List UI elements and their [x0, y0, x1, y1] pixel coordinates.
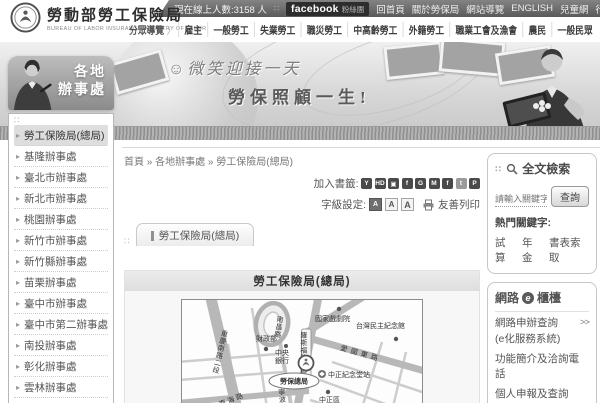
arrow-icon: ▸ [16, 131, 20, 140]
nav-item-farmer[interactable]: 農民 [522, 22, 551, 37]
facebook-bookmark-icon[interactable]: f [402, 178, 413, 189]
sidebar-item-chiayi[interactable]: ▸嘉義辦事處 [14, 398, 108, 403]
dots-decor: ∷ [14, 115, 108, 125]
sidebar-item-taoyuan[interactable]: ▸桃園辦事處 [14, 209, 108, 230]
fontsize-large-button[interactable]: A [401, 198, 414, 211]
arrow-icon: ▸ [16, 278, 20, 287]
sidebar-item-taichung2[interactable]: ▸臺中市第二辦事處 [14, 314, 108, 335]
dots-decor: ∷ [124, 236, 130, 246]
panel-title: 勞工保險局(總局) [125, 271, 479, 291]
nav-item-foreign[interactable]: 外籍勞工 [403, 22, 450, 37]
search-title: 全文檢索 [522, 160, 570, 177]
sidebar-item-taipei[interactable]: ▸臺北市辦事處 [14, 167, 108, 188]
dots-decor: ∷ [495, 164, 501, 174]
e-counter-title-suffix: 櫃檯 [537, 289, 561, 306]
page: 現在線上人數:3158 人 ∷ facebook 粉絲團 回首頁 關於勞保局 網… [0, 0, 600, 403]
fontsize-label: 字級設定: [321, 197, 366, 212]
sidebar-item-taichung[interactable]: ▸臺中市辦事處 [14, 293, 108, 314]
printer-icon [422, 199, 435, 211]
top-link-about[interactable]: 關於勞保局 [412, 2, 460, 16]
more-arrows: >> [580, 317, 589, 330]
arrow-icon: ▸ [16, 320, 20, 329]
twitter-bookmark-icon[interactable]: t [456, 178, 467, 189]
photo-strip [383, 42, 444, 80]
metro-station-icon [318, 370, 326, 378]
plurk-bookmark-icon[interactable]: P [469, 178, 480, 189]
sidebar-item-hsinchu-county[interactable]: ▸新竹縣辦事處 [14, 251, 108, 272]
tab-row: ∷ 勞工保險局(總局) [124, 223, 480, 246]
bli-map-marker-icon [299, 356, 314, 371]
bookmark-row: 加入書籤: Y HD ▣ f G M f t P [124, 176, 480, 191]
sidebar-item-changhua[interactable]: ▸彰化辦事處 [14, 356, 108, 377]
e-counter-item-apply[interactable]: 網路申辦查詢 >> [495, 312, 589, 332]
nav-item-senior[interactable]: 中高齡勞工 [347, 22, 402, 37]
facebook-suffix: 粉絲團 [342, 4, 365, 15]
nav-item-unemployed[interactable]: 失業勞工 [254, 22, 301, 37]
content-panel: 勞工保險局(總局) [124, 270, 480, 403]
e-counter-item-apply-sub[interactable]: (e化服務系統) [495, 332, 589, 348]
arrow-icon: ▸ [16, 383, 20, 392]
map-poi-theater: 國家戲劇院 [315, 314, 350, 323]
fulltext-search-box: ∷ 全文檢索 查詢 熱門關鍵字: 試算 年金 書表索取 [487, 153, 597, 274]
top-link-sitemap[interactable]: 網站導覽 [466, 2, 504, 16]
map-poi-mof: 財政部 [256, 334, 277, 343]
location-map: 重慶南路二段 南昌路 羅斯福路一段 寧波西街 愛國東路 南海路 國家戲劇院 台灣… [181, 299, 423, 403]
chevron-icon: 〉 [167, 22, 178, 37]
arrow-icon: ▸ [16, 341, 20, 350]
tab-bar-icon [151, 231, 154, 241]
arrow-icon: ▸ [16, 215, 20, 224]
fontsize-small-button[interactable]: A [369, 198, 382, 211]
banner-slogan-line1: ☺微笑迎接一天 [168, 55, 301, 79]
banner-slogan-line2: 勞保照顧一生! [228, 83, 371, 108]
hemidemi-bookmark-icon[interactable]: HD [375, 178, 386, 189]
nav-item-worker[interactable]: 一般勞工 [207, 22, 254, 37]
fontsize-row: 字級設定: A A A 友善列印 [124, 197, 480, 212]
bookmark-label: 加入書籤: [314, 176, 359, 191]
sidebar-item-newtaipei[interactable]: ▸新北市辦事處 [14, 188, 108, 209]
print-button[interactable]: 友善列印 [422, 197, 480, 212]
nav-lead: 分眾導覽 [129, 22, 167, 37]
sidebar-item-hsinchu-city[interactable]: ▸新竹市辦事處 [14, 230, 108, 251]
e-counter-item-personal[interactable]: 個人申報及查詢 [495, 383, 589, 403]
facebook-share-icon[interactable]: f [442, 178, 453, 189]
content-divider [122, 147, 600, 148]
map-poi-bank-line2: 銀行 [275, 356, 289, 365]
hot-link-pension[interactable]: 年金 [522, 235, 542, 265]
myshare-bookmark-icon[interactable]: M [429, 178, 440, 189]
arrow-icon: ▸ [16, 194, 20, 203]
sidebar-header: 各地 辦事處 [8, 56, 114, 110]
bli-logo-icon [10, 2, 41, 33]
main-content: 首頁 » 各地辦事處 » 勞工保險局(總局) 加入書籤: Y HD ▣ f G … [124, 153, 480, 403]
search-icon [506, 163, 518, 175]
map-poi-bank-line1: 中央 [275, 348, 289, 357]
dots-decor: ∷ [274, 4, 279, 13]
google-bookmark-icon[interactable]: G [415, 178, 426, 189]
sidebar-item-nantou[interactable]: ▸南投辦事處 [14, 335, 108, 356]
hot-link-forms[interactable]: 書表索取 [549, 235, 589, 265]
sidebar-title: 各地 辦事處 [58, 62, 106, 98]
panel-body: 重慶南路二段 南昌路 羅斯福路一段 寧波西街 愛國東路 南海路 國家戲劇院 台灣… [125, 291, 479, 403]
nav-item-employer[interactable]: 雇主 [178, 22, 207, 37]
hot-link-estimate[interactable]: 試算 [495, 235, 515, 265]
sidebar-item-yunlin[interactable]: ▸雲林辦事處 [14, 377, 108, 398]
search-box-header: ∷ 全文檢索 [495, 160, 589, 177]
top-link-english[interactable]: ENGLISH [511, 3, 553, 14]
arrow-icon: ▸ [16, 173, 20, 182]
tab-headquarters[interactable]: 勞工保險局(總局) [136, 223, 255, 246]
e-counter-item-intro[interactable]: 功能簡介及洽詢電話 [495, 348, 589, 382]
facebook-label: facebook [291, 3, 339, 15]
search-submit-button[interactable]: 查詢 [551, 186, 589, 207]
top-link-home[interactable]: 回首頁 [376, 2, 405, 16]
e-circle-icon: e [522, 292, 534, 304]
arrow-icon: ▸ [16, 299, 20, 308]
map-poi-memorial: 台灣民主紀念館 [356, 321, 405, 330]
facebook-fanpage-button[interactable]: facebook 粉絲團 [286, 2, 369, 16]
arrow-icon: ▸ [16, 257, 20, 266]
funp-bookmark-icon[interactable]: ▣ [388, 178, 399, 189]
print-label: 友善列印 [438, 197, 480, 212]
map-poi-station: 中正紀念堂站 [328, 370, 370, 379]
e-counter-header: 網路 e 櫃檯 [495, 289, 589, 312]
sidebar-item-headquarters[interactable]: ▸勞工保險局(總局) [14, 125, 108, 146]
map-poi-bli: 勞保總局 [280, 377, 308, 386]
office-sidebar: 各地 辦事處 ∷ ▸勞工保險局(總局) ▸基隆辦事處 ▸臺北市辦事處 ▸新北市辦… [8, 56, 114, 403]
hot-keywords: 試算 年金 書表索取 [495, 235, 589, 265]
top-link-mobile[interactable]: 行動版 [596, 2, 600, 16]
arrow-icon: ▸ [16, 152, 20, 161]
nav-item-injured[interactable]: 職災勞工 [301, 22, 348, 37]
arrow-icon: ▸ [16, 362, 20, 371]
nav-item-public[interactable]: 一般民眾 [551, 22, 598, 37]
sidebar-item-miaoli[interactable]: ▸苗栗辦事處 [14, 272, 108, 293]
hot-keywords-label: 熱門關鍵字: [495, 215, 589, 230]
yahoo-bookmark-icon[interactable]: Y [361, 178, 372, 189]
arrow-icon: ▸ [16, 236, 20, 245]
audience-nav: 分眾導覽 〉 雇主 一般勞工 失業勞工 職災勞工 中高齡勞工 外籍勞工 職業工會… [241, 17, 598, 41]
receptionist-photo [10, 58, 62, 110]
right-sidebar: ∷ 全文檢索 查詢 熱門關鍵字: 試算 年金 書表索取 網路 e [487, 153, 597, 403]
e-counter-box: 網路 e 櫃檯 網路申辦查詢 >> (e化服務系統) 功能簡介及洽詢電話 個人申… [487, 282, 597, 403]
top-link-kids[interactable]: 兒童網 [560, 2, 589, 16]
top-utility-bar: 現在線上人數:3158 人 ∷ facebook 粉絲團 回首頁 關於勞保局 網… [158, 0, 600, 17]
fontsize-medium-button[interactable]: A [385, 198, 398, 211]
breadcrumb[interactable]: 首頁 » 各地辦事處 » 勞工保險局(總局) [124, 153, 480, 168]
search-input[interactable] [495, 194, 547, 207]
nav-item-union[interactable]: 職業工會及漁會 [449, 22, 522, 37]
office-list: ∷ ▸勞工保險局(總局) ▸基隆辦事處 ▸臺北市辦事處 ▸新北市辦事處 ▸桃園辦… [8, 113, 114, 403]
e-counter-title-prefix: 網路 [495, 289, 519, 306]
map-poi-admin-line1: 中正區 [319, 395, 340, 403]
sidebar-item-keelung[interactable]: ▸基隆辦事處 [14, 146, 108, 167]
